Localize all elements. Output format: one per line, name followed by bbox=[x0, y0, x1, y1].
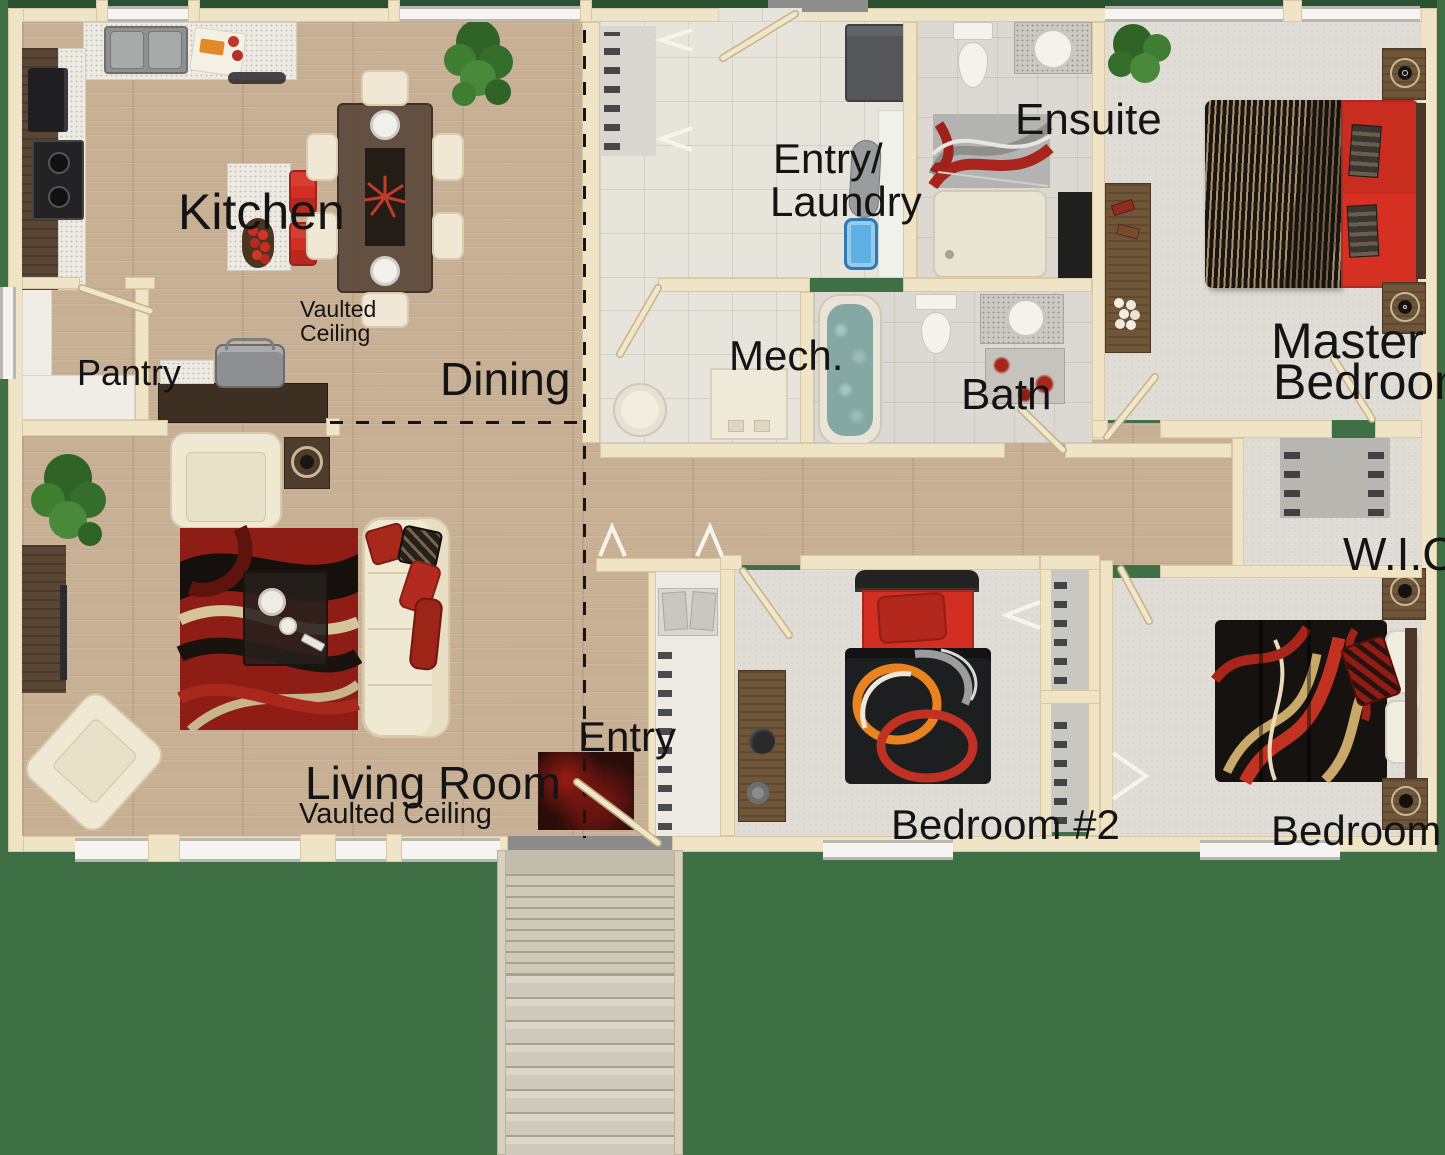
floor-plan: Kitchen Vaulted Ceiling Pantry Dining En… bbox=[0, 0, 1445, 1155]
door-swing-overlay bbox=[0, 0, 1445, 1155]
